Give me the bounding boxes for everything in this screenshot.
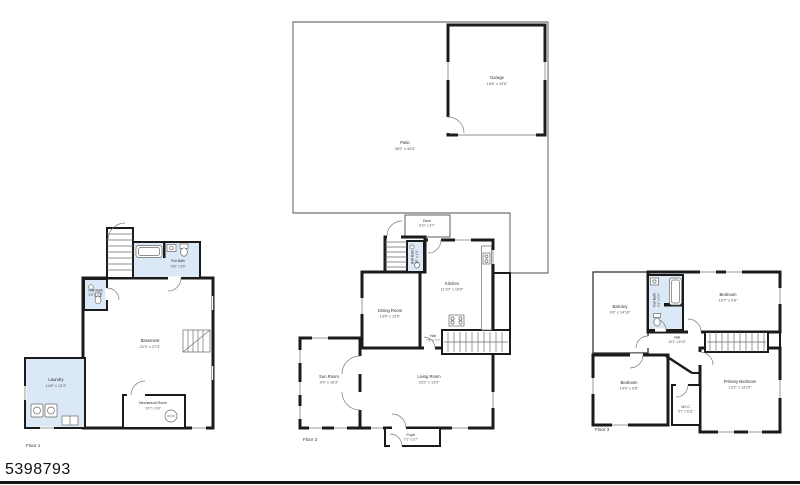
room-name: Full Bath bbox=[171, 259, 185, 263]
room-label-hall-3: Hall 10'1" x 5'10" bbox=[668, 336, 685, 345]
room-dims: 9'9" x 14'10" bbox=[610, 311, 631, 315]
floorplan-sheet: Full Bath 10'9" x 5'6" Half Bath 3'6" x … bbox=[0, 0, 800, 485]
room-name: Bedroom bbox=[621, 380, 639, 385]
room-dims: 14'4" x 9'8" bbox=[620, 387, 639, 391]
floorplan-canvas: Full Bath 10'9" x 5'6" Half Bath 3'6" x … bbox=[0, 0, 800, 485]
room-dims: 10'7" x 9'9" bbox=[145, 407, 161, 411]
room-name: Hall bbox=[430, 334, 436, 338]
room-name: Laundry bbox=[48, 377, 64, 382]
room-dims: 8'11" x 3'7" bbox=[419, 224, 434, 228]
room-dims: 3'6" x 4'2" bbox=[89, 293, 103, 297]
room-name: Dining Room bbox=[378, 308, 403, 313]
room-name: Living Room bbox=[417, 374, 441, 379]
room-name: Deck bbox=[423, 219, 431, 223]
room-name: Kitchen bbox=[445, 281, 460, 286]
room-name: Foyer bbox=[407, 433, 417, 437]
room-name: Primary Bedroom bbox=[724, 379, 757, 384]
room-dims: 16'7" x 9'8" bbox=[719, 299, 738, 303]
floor-3-plan: Balcony 9'9" x 14'10" Full Bath 5'3" x 9… bbox=[591, 270, 781, 433]
floor-2-label: Floor 2 bbox=[303, 437, 318, 442]
room-name: Garage bbox=[490, 75, 505, 80]
room-dims: 7'9" x 7'1" bbox=[426, 339, 440, 343]
room-name: Patio bbox=[400, 140, 410, 145]
room-name: Basement bbox=[141, 338, 161, 343]
floor-3-label: Floor 3 bbox=[595, 427, 610, 432]
room-dims: 5'1" x 6'11" bbox=[678, 410, 693, 414]
room-name: Half Bath bbox=[411, 250, 415, 264]
room-label-balcony: Balcony 9'9" x 14'10" bbox=[610, 304, 631, 315]
room-label-full-bath-1: Full Bath 10'9" x 5'6" bbox=[170, 259, 186, 269]
bottom-border-line bbox=[0, 481, 800, 484]
room-dims: 23'2" x 13'9" bbox=[419, 381, 440, 385]
room-dims: 7'1" x 3'7" bbox=[404, 438, 418, 442]
room-dims: 13'9" x 13'5" bbox=[380, 315, 401, 319]
room-name: Full Bath bbox=[653, 293, 657, 307]
room-dims: 5'3" x 9'9" bbox=[657, 293, 661, 307]
room-label-patio: Patio 48'2" x 44'5" bbox=[395, 140, 416, 151]
room-dims: 11'10" x 15'9" bbox=[441, 288, 464, 292]
room-dims: 22'3" x 27'3" bbox=[140, 345, 161, 349]
room-label-half-bath-1: Half Bath 3'6" x 4'2" bbox=[88, 289, 102, 298]
room-dims: 9'9" x 19'3" bbox=[320, 381, 339, 385]
room-label-half-bath-2: Half Bath 3'0" x 4'6" bbox=[411, 250, 420, 264]
room-label-deck: Deck 8'11" x 3'7" bbox=[419, 219, 434, 228]
floor-2-plan: Patio 48'2" x 44'5" Garage 16'8" x 19'6"… bbox=[293, 22, 548, 448]
floor-1-plan: Full Bath 10'9" x 5'6" Half Bath 3'6" x … bbox=[23, 223, 213, 448]
mls-number: 5398793 bbox=[5, 461, 71, 479]
room-name: Sun Room bbox=[319, 374, 339, 379]
room-name: W.I.C. bbox=[681, 405, 691, 409]
room-name: Bedroom bbox=[720, 292, 738, 297]
room-dims: 10'9" x 5'6" bbox=[170, 265, 186, 269]
room-name: Balcony bbox=[613, 304, 629, 309]
room-dims: 3'0" x 4'6" bbox=[415, 250, 419, 264]
floor-1-label: Floor 1 bbox=[26, 443, 41, 448]
room-dims: 48'2" x 44'5" bbox=[395, 147, 416, 151]
room-label-full-bath-3: Full Bath 5'3" x 9'9" bbox=[653, 293, 662, 307]
floor-2-walls bbox=[300, 237, 510, 446]
room-name: Hall bbox=[674, 336, 680, 340]
room-name: Half Bath bbox=[88, 289, 102, 293]
room-dims: 16'8" x 19'6" bbox=[487, 82, 508, 86]
room-dims: 10'1" x 5'10" bbox=[668, 340, 685, 344]
room-dims: 14'8" x 13'3" bbox=[46, 384, 67, 388]
room-name: Mechanical Room bbox=[139, 401, 167, 405]
room-dims: 13'2" x 13'10" bbox=[729, 386, 753, 390]
